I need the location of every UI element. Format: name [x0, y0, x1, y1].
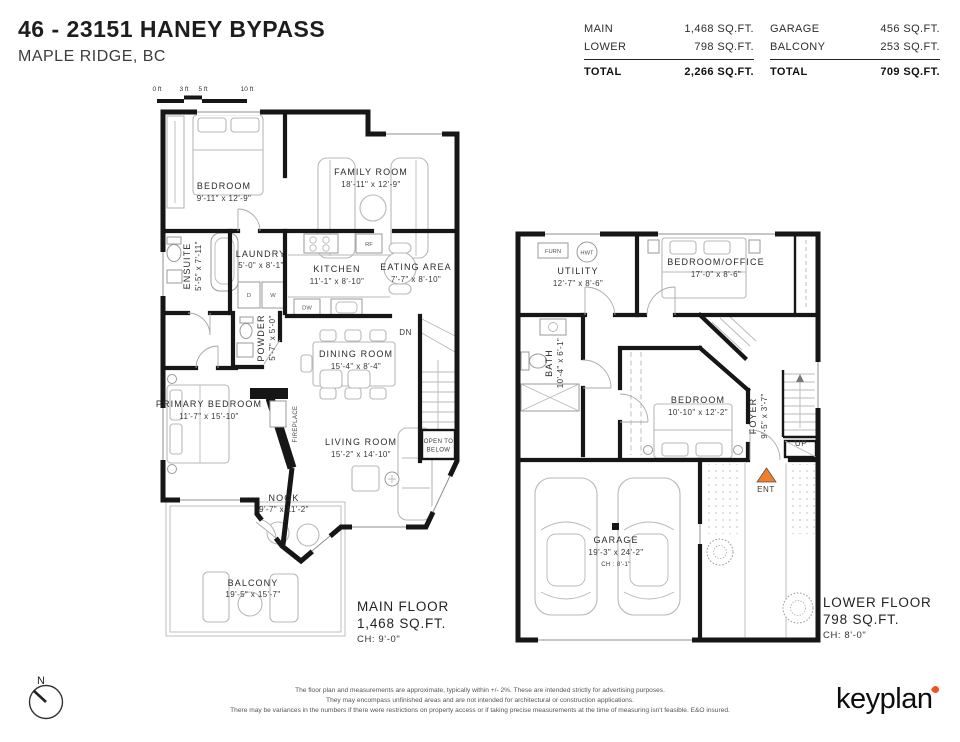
hot-water-tank-label: HWT: [580, 251, 594, 257]
fireplace: [250, 388, 292, 545]
room-label-nook: NOOK: [269, 493, 300, 503]
disclaimer-line: There may be variances in the numbers if…: [160, 706, 800, 716]
room-dims-living-room: 15'-2" x 14'-10": [331, 450, 391, 459]
disclaimer-line: They may encompass unfinished areas and …: [160, 696, 800, 706]
room-dims-kitchen: 11'-1" x 8'-10": [310, 277, 365, 286]
room-label-kitchen: KITCHEN: [313, 264, 360, 274]
room-dims-powder: 5'-7" x 5'-0": [268, 315, 277, 361]
compass-icon: N: [30, 675, 63, 719]
entry-walk: ENT: [703, 463, 816, 638]
floor-area: 1,468 SQ.FT.: [357, 615, 449, 632]
car: [535, 478, 597, 615]
room-label-garage: GARAGE: [593, 535, 638, 545]
room-dims-nook: 9'-7" x 11'-2": [259, 505, 309, 514]
floor-area: 798 SQ.FT.: [823, 611, 932, 628]
scale-tick: 10 ft: [241, 86, 254, 93]
room-dims-laundry: 5'-0" x 8'-1": [238, 261, 284, 270]
room-label-powder: POWDER: [256, 314, 266, 361]
main-floor-plan: RF DW D W: [156, 112, 457, 636]
floor-name: LOWER FLOOR: [823, 594, 932, 611]
main-floor-summary: MAIN FLOOR 1,468 SQ.FT. CH: 9'-0": [357, 598, 449, 645]
room-label-foyer: FOYER: [748, 398, 758, 435]
room-dims-foyer: 9'-5" x 3'-7": [760, 393, 769, 439]
open-to-below-label: OPEN TO: [424, 439, 454, 445]
room-label-primary-bedroom: PRIMARY BEDROOM: [156, 399, 262, 409]
room-dims-dining-room: 15'-4" x 8'-4": [331, 362, 381, 371]
disclaimer-text: The floor plan and measurements are appr…: [160, 686, 800, 716]
main-stairs: [420, 318, 455, 459]
floor-ceiling-height: CH: 9'-0": [357, 634, 449, 645]
open-to-below-label: BELOW: [427, 448, 451, 454]
scale-tick: 5 ft: [198, 86, 207, 93]
room-label-laundry: LAUNDRY: [236, 249, 287, 259]
dishwasher-label: DW: [302, 306, 312, 312]
room-label-balcony: BALCONY: [228, 578, 279, 588]
room-label-bedroom-lower: BEDROOM: [671, 395, 725, 405]
scale-tick: 3 ft: [179, 86, 188, 93]
washer-label: W: [270, 293, 276, 299]
room-label-ensuite: ENSUITE: [182, 243, 192, 290]
room-dims-utility: 12'-7" x 8'-6": [553, 279, 603, 288]
room-dims-bedroom-lower: 10'-10" x 12'-2": [668, 408, 728, 417]
room-dims-bath: 10'-4" x 6'-1": [556, 338, 565, 388]
floor-name: MAIN FLOOR: [357, 598, 449, 615]
entry-label: ENT: [757, 485, 775, 494]
room-dims-garage: 19'-3" x 24'-2": [588, 548, 643, 557]
dryer-label: D: [247, 293, 251, 299]
room-dims-balcony: 19'-5" x 15'-7": [225, 590, 280, 599]
fireplace-label: FIREPLACE: [293, 406, 299, 443]
room-label-bedroom-office: BEDROOM/OFFICE: [667, 257, 764, 267]
floorplan-page: 46 - 23151 HANEY BYPASS MAPLE RIDGE, BC …: [0, 0, 960, 742]
tree-icon: [783, 593, 813, 623]
car: [618, 478, 680, 615]
room-dims-primary-bedroom: 11'-7" x 15'-10": [179, 412, 238, 421]
disclaimer-line: The floor plan and measurements are appr…: [160, 686, 800, 696]
balcony-railing: [166, 502, 345, 636]
garage-ceiling-label: CH : 8'-1": [601, 562, 631, 568]
logo-text: keyplan: [836, 683, 932, 715]
room-label-utility: UTILITY: [557, 266, 598, 276]
room-dims-bedroom: 9'-11" x 12'-9": [197, 194, 252, 203]
stairs-dn-label: DN: [399, 328, 412, 337]
room-label-bath: BATH: [544, 349, 554, 377]
entry-marker-icon: [757, 468, 776, 482]
room-label-dining-room: DINING ROOM: [319, 349, 393, 359]
scale-tick: 0 ft: [152, 86, 161, 93]
main-floor-furniture: RF DW D W: [167, 115, 432, 622]
room-dims-bedroom-office: 17'-0" x 8'-6": [691, 270, 741, 279]
keyplan-logo: keyplan: [836, 683, 932, 716]
room-label-living-room: LIVING ROOM: [325, 437, 397, 447]
floor-ceiling-height: CH: 8'-0": [823, 630, 932, 641]
room-label-family-room: FAMILY ROOM: [334, 167, 408, 177]
fridge-label: RF: [365, 242, 373, 248]
stairs-up-label: UP: [795, 439, 807, 448]
scale-bar: 0 ft 3 ft 5 ft 10 ft: [152, 86, 253, 103]
room-label-eating-area: EATING AREA: [380, 262, 451, 272]
room-dims-eating-area: 7'-7" x 8'-10": [391, 275, 441, 284]
tree-icon: [707, 539, 733, 565]
lower-floor-summary: LOWER FLOOR 798 SQ.FT. CH: 8'-0": [823, 594, 932, 641]
compass-north-label: N: [37, 675, 45, 687]
lower-floor-plan: ENT FURN HWT: [518, 234, 818, 640]
room-dims-ensuite: 5'-5" x 7'-11": [194, 241, 203, 291]
furnace-label: FURN: [545, 249, 561, 255]
room-dims-family-room: 18'-11" x 12'-9": [341, 180, 400, 189]
room-label-bedroom: BEDROOM: [197, 181, 251, 191]
floorplan-drawing: 0 ft 3 ft 5 ft 10 ft: [0, 0, 960, 742]
